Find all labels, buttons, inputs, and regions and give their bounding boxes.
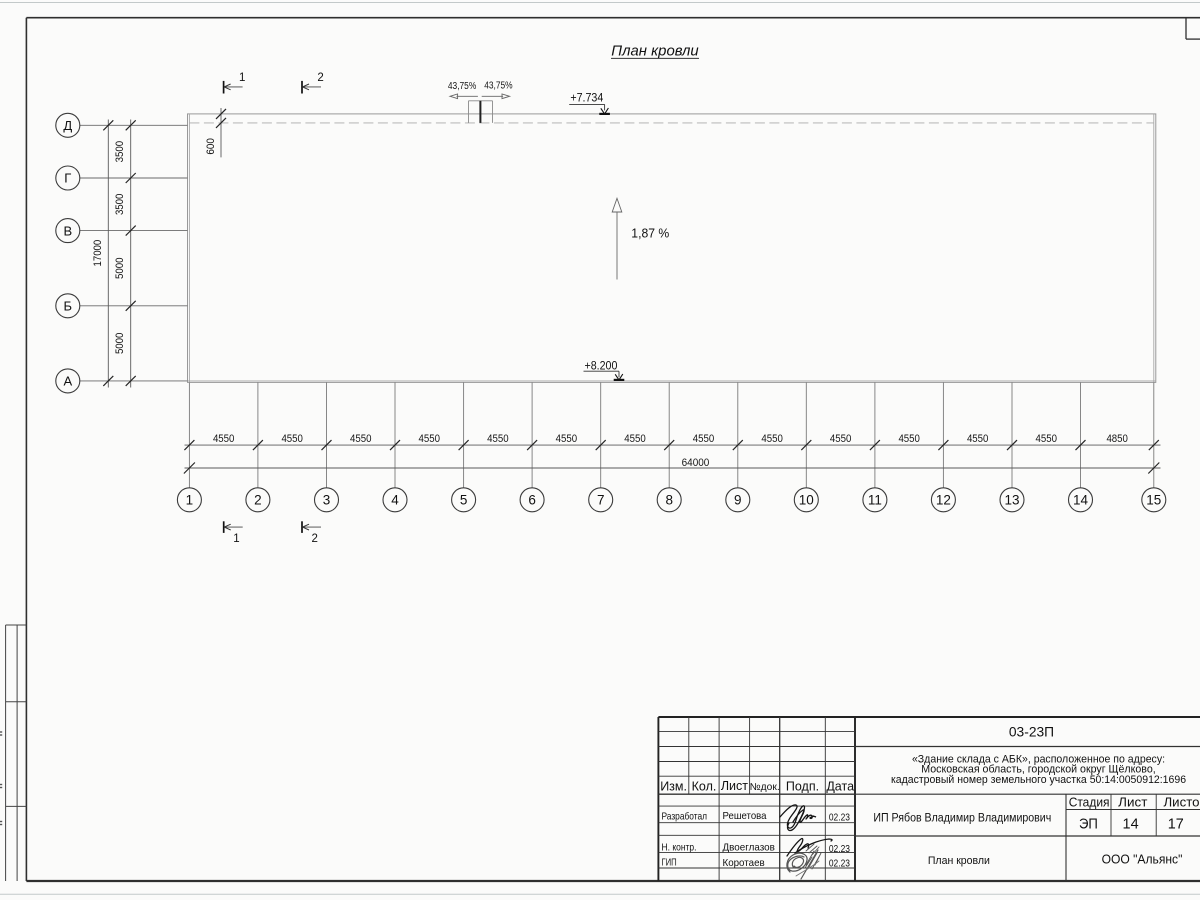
svg-text:3500: 3500 — [114, 141, 126, 163]
svg-text:1,87 %: 1,87 % — [631, 226, 669, 241]
svg-text:5: 5 — [460, 493, 468, 508]
svg-text:2: 2 — [311, 533, 317, 545]
svg-text:+7.734: +7.734 — [570, 91, 603, 105]
svg-text:Лист: Лист — [721, 779, 748, 793]
svg-text:4550: 4550 — [830, 433, 852, 445]
svg-text:4550: 4550 — [898, 433, 920, 445]
svg-text:4550: 4550 — [281, 433, 303, 445]
svg-text:5000: 5000 — [114, 333, 126, 355]
svg-text:10: 10 — [799, 493, 814, 508]
svg-text:5000: 5000 — [114, 257, 126, 279]
svg-text:12: 12 — [936, 493, 951, 508]
svg-text:02.23: 02.23 — [829, 812, 850, 824]
svg-text:Двоеглазов: Двоеглазов — [723, 842, 776, 854]
svg-text:Решетова: Решетова — [723, 810, 767, 822]
svg-text:Кол.: Кол. — [692, 779, 717, 793]
svg-text:7: 7 — [597, 493, 605, 508]
svg-text:ИП Рябов Владимир Владимирович: ИП Рябов Владимир Владимирович — [873, 813, 1051, 825]
svg-text:02.23: 02.23 — [829, 843, 850, 855]
svg-text:43,75%: 43,75% — [484, 81, 512, 92]
svg-text:02.23: 02.23 — [829, 858, 850, 870]
svg-text:03-23П: 03-23П — [1009, 724, 1054, 740]
svg-text:Листов: Листов — [1164, 796, 1200, 810]
svg-text:Н. контр.: Н. контр. — [662, 842, 697, 854]
svg-text:4550: 4550 — [761, 433, 783, 445]
svg-text:17000: 17000 — [92, 240, 104, 267]
svg-text:8: 8 — [665, 493, 673, 508]
svg-text:ООО "Альянс": ООО "Альянс" — [1102, 853, 1183, 867]
svg-text:14: 14 — [1123, 817, 1139, 833]
svg-text:9: 9 — [734, 493, 742, 508]
svg-text:Коротаев: Коротаев — [723, 857, 766, 869]
svg-text:11: 11 — [868, 493, 882, 508]
svg-text:4550: 4550 — [556, 433, 578, 445]
svg-text:64000: 64000 — [682, 457, 710, 469]
svg-text:Стадия: Стадия — [1069, 796, 1110, 810]
svg-text:4550: 4550 — [213, 433, 235, 445]
svg-text:13: 13 — [1004, 493, 1019, 508]
svg-text:кадастровый номер земельного у: кадастровый номер земельного участка 50:… — [891, 774, 1186, 786]
svg-text:Б: Б — [64, 299, 73, 314]
svg-text:Изм.: Изм. — [660, 779, 687, 793]
svg-text:План кровли: План кровли — [928, 855, 990, 867]
svg-text:Разработал: Разработал — [662, 810, 708, 822]
svg-text:4550: 4550 — [624, 433, 646, 445]
svg-text:Г: Г — [64, 171, 71, 186]
svg-text:17: 17 — [1168, 817, 1184, 833]
svg-text:4850: 4850 — [1106, 433, 1128, 445]
svg-text:3: 3 — [323, 493, 331, 508]
svg-text:Подп.: Подп. — [786, 779, 819, 793]
svg-text:А: А — [63, 374, 72, 389]
svg-text:1: 1 — [233, 533, 239, 545]
svg-text:600: 600 — [205, 138, 217, 155]
svg-text:4550: 4550 — [419, 433, 441, 445]
svg-text:1: 1 — [186, 493, 194, 508]
svg-text:В: В — [63, 223, 72, 238]
svg-text:4550: 4550 — [967, 433, 989, 445]
svg-text:Дата: Дата — [826, 779, 854, 793]
svg-text:15: 15 — [1146, 493, 1161, 508]
svg-text:2: 2 — [254, 493, 262, 508]
svg-text:№док.: №док. — [750, 782, 780, 793]
svg-text:14: 14 — [1073, 493, 1089, 508]
svg-text:6: 6 — [528, 493, 536, 508]
svg-text:Лист: Лист — [1118, 796, 1147, 810]
svg-text:4: 4 — [391, 493, 399, 508]
svg-text:ГИП: ГИП — [662, 857, 677, 869]
svg-text:4550: 4550 — [1036, 433, 1058, 445]
svg-text:1: 1 — [239, 72, 245, 84]
svg-text:4550: 4550 — [350, 433, 372, 445]
svg-text:План кровли: План кровли — [611, 43, 698, 59]
svg-text:4550: 4550 — [693, 433, 715, 445]
svg-text:4550: 4550 — [487, 433, 509, 445]
svg-text:ЭП: ЭП — [1079, 817, 1098, 833]
svg-text:+8.200: +8.200 — [585, 358, 618, 372]
svg-text:3500: 3500 — [114, 194, 126, 216]
svg-text:Д: Д — [63, 118, 72, 133]
svg-text:2: 2 — [317, 72, 323, 84]
svg-text:43,75%: 43,75% — [448, 81, 476, 92]
